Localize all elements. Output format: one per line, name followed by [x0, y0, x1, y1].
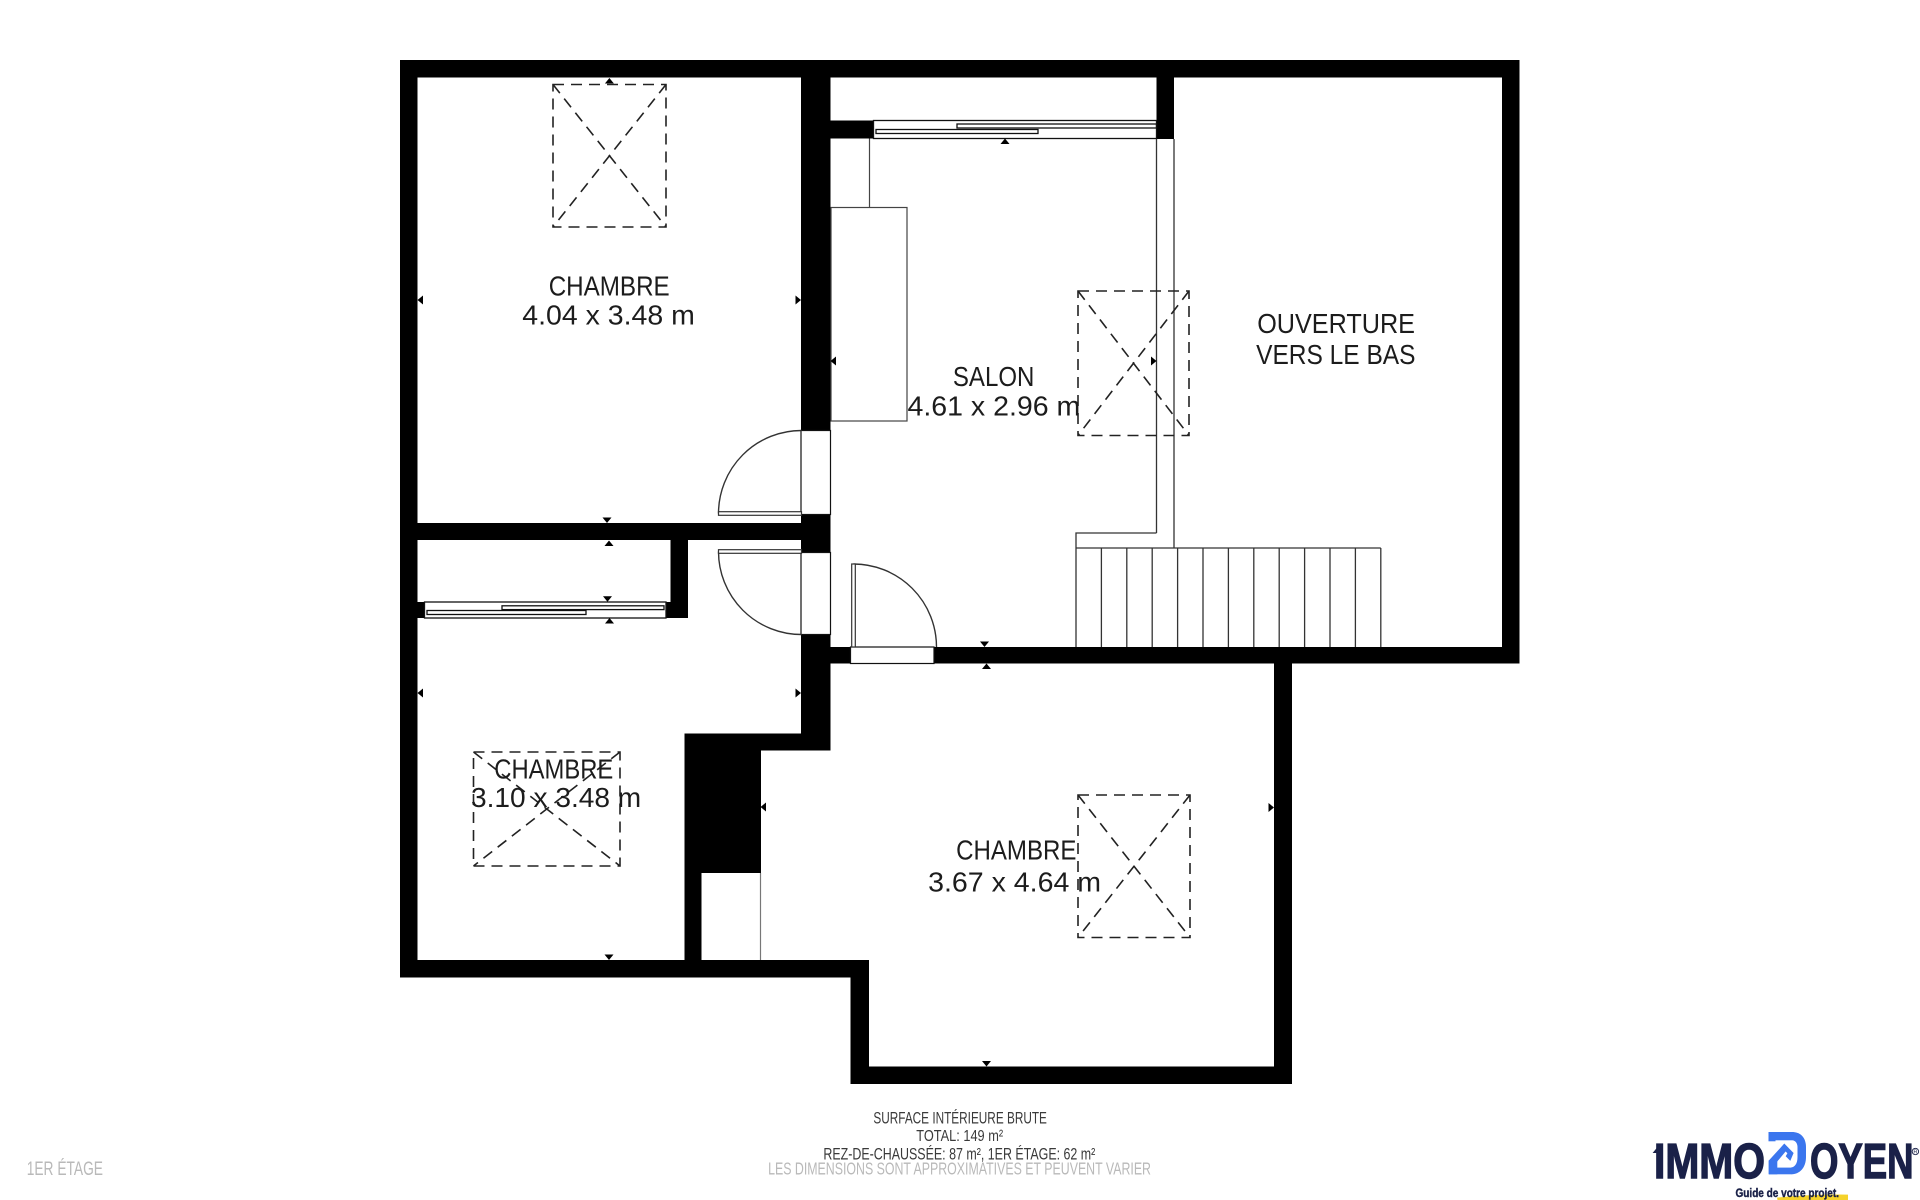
svg-text:1ER ÉTAGE: 1ER ÉTAGE [27, 1157, 103, 1180]
svg-text:OUVERTURE: OUVERTURE [1257, 308, 1415, 339]
svg-text:CHAMBRE: CHAMBRE [549, 271, 670, 302]
svg-text:CHAMBRE: CHAMBRE [494, 754, 613, 785]
svg-text:R: R [1913, 1150, 1917, 1156]
svg-text:3.67 x 4.64 m: 3.67 x 4.64 m [928, 867, 1101, 898]
svg-text:4.61 x 2.96 m: 4.61 x 2.96 m [908, 391, 1081, 422]
svg-text:4.04 x 3.48 m: 4.04 x 3.48 m [522, 300, 695, 331]
svg-text:LES DIMENSIONS SONT APPROXIMAT: LES DIMENSIONS SONT APPROXIMATIVES ET PE… [768, 1158, 1151, 1178]
svg-text:SURFACE INTÉRIEURE BRUTE: SURFACE INTÉRIEURE BRUTE [873, 1108, 1047, 1127]
svg-text:Guide de votre projet.: Guide de votre projet. [1736, 1188, 1840, 1200]
svg-text:TOTAL: 149 m²: TOTAL: 149 m² [916, 1128, 1003, 1145]
svg-text:3.10 x 3.48 m: 3.10 x 3.48 m [471, 782, 641, 813]
svg-text:SALON: SALON [953, 361, 1035, 392]
svg-text:OYEN: OYEN [1810, 1135, 1914, 1189]
svg-text:CHAMBRE: CHAMBRE [956, 835, 1076, 866]
svg-text:VERS LE BAS: VERS LE BAS [1256, 339, 1415, 370]
svg-text:IMMO: IMMO [1654, 1135, 1765, 1189]
